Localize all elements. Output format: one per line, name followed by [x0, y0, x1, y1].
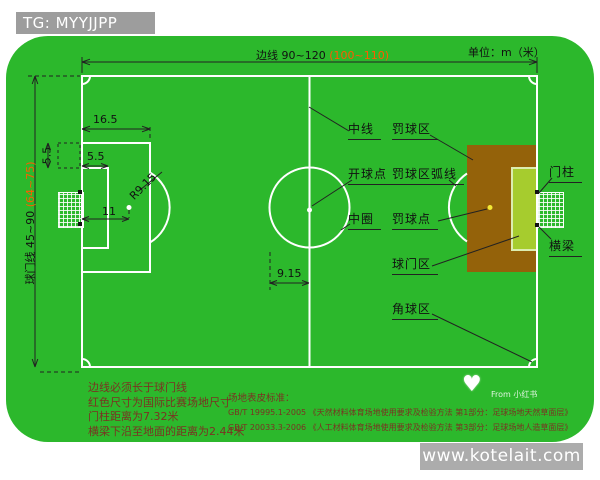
note-line: 横梁下沿至地面的距离为2.44米 — [88, 425, 245, 440]
dim-circle-radius: 9.15 — [277, 267, 302, 280]
label-penalty-area: 罚球区 — [392, 120, 438, 140]
label-center-circle: 中圈 — [348, 210, 381, 230]
label-kickoff-point: 开球点 — [348, 165, 394, 185]
dim-penalty-depth: 16.5 — [93, 113, 118, 126]
touchline-intl-value: (100~110) — [329, 49, 389, 62]
touchline-dimension: 边线 90~120 (100~110) — [256, 47, 389, 63]
label-penalty-spot: 罚球点 — [392, 210, 438, 230]
website-watermark: www.kotelait.com — [420, 443, 583, 470]
label-goal-post: 门柱 — [549, 163, 582, 183]
heart-icon: ♥ — [462, 372, 482, 397]
field-notes: 边线必须长于球门线 红色尺寸为国际比赛场地尺寸 门柱距离为7.32米 横梁下沿至… — [88, 381, 245, 439]
watermark-source: From 小红书 — [491, 389, 537, 400]
unit-label: 单位：m（米） — [468, 44, 545, 60]
label-penalty-arc: 罚球区弧线 — [392, 165, 464, 185]
goal-net-right — [538, 192, 564, 228]
source-tag-bar: TG: MYYJJPP — [16, 12, 155, 34]
label-crossbar: 横梁 — [549, 237, 582, 257]
note-line: 门柱距离为7.32米 — [88, 410, 245, 425]
standard-line: GB/T 20033.3-2006 《人工材料体育场地使用要求及检验方法 第3部… — [228, 421, 572, 436]
dim-goal-side: 5.5 — [41, 141, 54, 171]
goal-line-dimension: 球门线 45~90 (64~75) — [22, 143, 38, 303]
touchline-value: 边线 90~120 — [256, 49, 326, 62]
note-line: 红色尺寸为国际比赛场地尺寸 — [88, 396, 245, 411]
label-corner-area: 角球区 — [392, 300, 438, 320]
goal-line-value: 球门线 45~90 — [24, 211, 37, 285]
standard-line: GB/T 19995.1-2005 《天然材料体育场地使用要求及检验方法 第1部… — [228, 406, 572, 421]
goal-line-intl-value: (64~75) — [24, 162, 37, 208]
page: 边线 90~120 (100~110) 单位：m（米） 球门线 45~90 (6… — [0, 0, 600, 480]
note-line: 边线必须长于球门线 — [88, 381, 245, 396]
label-center-line: 中线 — [348, 120, 381, 140]
label-goal-area: 球门区 — [392, 255, 438, 275]
dim-penalty-dist: 11 — [102, 205, 116, 218]
goal-net-left — [58, 192, 84, 228]
dim-goal-depth: 5.5 — [87, 150, 105, 163]
